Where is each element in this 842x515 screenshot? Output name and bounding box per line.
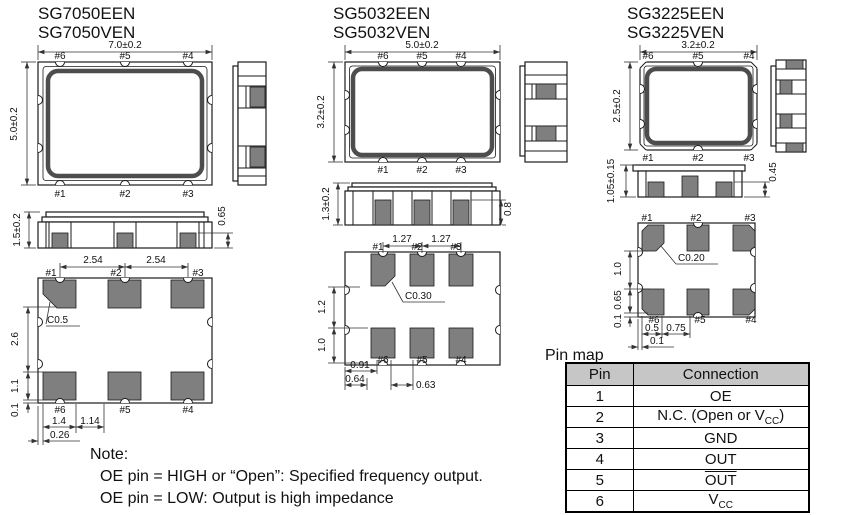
pin-label: #4 bbox=[455, 51, 467, 62]
terminal-pad bbox=[250, 87, 265, 107]
pin-label: #5 bbox=[694, 315, 706, 326]
pin-label: #1 bbox=[377, 165, 389, 176]
pin-label: #6 bbox=[54, 405, 66, 416]
pin-map-header-row: Pin Connection bbox=[566, 363, 809, 386]
terminal-pad bbox=[52, 233, 68, 248]
terminal-pad bbox=[536, 84, 556, 99]
pin-map-row: 1 OE bbox=[566, 386, 809, 407]
connection-text: N.C. (Open or V bbox=[657, 407, 765, 424]
sg7050-bottom-dims: 1.4 1.14 0.26 bbox=[28, 404, 104, 445]
pin-number-cell: 1 bbox=[566, 386, 633, 407]
pin-label: #2 bbox=[416, 165, 428, 176]
dim-label: 1.4 bbox=[52, 416, 66, 427]
pin-label: #4 bbox=[455, 355, 467, 366]
terminal-pad bbox=[716, 182, 732, 197]
pad-6 bbox=[642, 289, 664, 315]
connection-cell: N.C. (Open or VCC) bbox=[633, 407, 809, 428]
chamfer-label: C0.20 bbox=[678, 253, 705, 264]
note-label: Note: bbox=[90, 444, 483, 466]
sg7050-pitch-dims: 2.54 2.54 bbox=[60, 255, 188, 277]
connection-column-header: Connection bbox=[633, 363, 809, 386]
dim-label: 1.2 bbox=[317, 300, 328, 314]
pin-label: #1 bbox=[641, 213, 653, 224]
terminal-pad bbox=[250, 147, 265, 167]
terminal-pad bbox=[780, 114, 792, 128]
terminal-pad bbox=[648, 182, 664, 197]
dim-label: 0.1 bbox=[613, 314, 624, 328]
pad-3 bbox=[449, 254, 473, 286]
sg5032-side-view bbox=[520, 62, 567, 162]
datasheet-page: 7.0±0.2 5.0±0.2 #6 #5 #4 #1 #2 #3 bbox=[0, 0, 842, 515]
dim-label: 1.0 bbox=[317, 338, 328, 352]
terminal-pad bbox=[786, 60, 803, 69]
pin-number-cell: 3 bbox=[566, 428, 633, 449]
dim-label: 3.2±0.2 bbox=[316, 95, 327, 129]
connection-text: V bbox=[709, 491, 719, 508]
sg5032-top-height-dim: 3.2±0.2 bbox=[316, 62, 343, 162]
pin-label: #2 bbox=[692, 153, 704, 164]
dim-label: 0.26 bbox=[50, 430, 70, 441]
pin-number-cell: 2 bbox=[566, 407, 633, 428]
pad-3 bbox=[171, 280, 204, 308]
sg7050-front-height-dim: 1.5±0.2 bbox=[12, 212, 40, 248]
sg7050-top-height-dim: 5.0±0.2 bbox=[9, 62, 36, 185]
pin-label: #4 bbox=[182, 405, 194, 416]
sg7050-side-view bbox=[233, 62, 266, 185]
pin-label: #2 bbox=[690, 213, 702, 224]
pad-4 bbox=[733, 289, 755, 315]
chamfer-label: C0.30 bbox=[405, 291, 432, 302]
terminal-pad bbox=[682, 176, 698, 197]
connection-cell: GND bbox=[633, 428, 809, 449]
pin-map-row: 6 VCC bbox=[566, 491, 809, 513]
pin-map-table: Pin Connection 1 OE 2 N.C. (Open or VCC)… bbox=[565, 362, 810, 513]
pad-5 bbox=[108, 372, 141, 400]
sg3225-bottom-view: #1 #2 #3 #6 #5 #4 C0.20 1.0 0.65 0.1 bbox=[613, 213, 757, 350]
pin-label: #4 bbox=[182, 51, 194, 62]
title-line: SG3225VEN bbox=[627, 23, 724, 42]
title-line: SG5032EEN bbox=[333, 4, 430, 23]
pin-label: #3 bbox=[743, 153, 755, 164]
pad-6 bbox=[371, 328, 395, 358]
dim-label: 2.54 bbox=[146, 255, 166, 266]
dim-label: 2.5±0.2 bbox=[612, 89, 623, 123]
pin-label: #3 bbox=[744, 213, 756, 224]
pin-map-row: 5 OUT bbox=[566, 470, 809, 491]
connection-cell: OUT bbox=[633, 470, 809, 491]
sg5032-bottom-view: #1 #2 #3 #6 #5 #4 1.27 1.27 C0.30 1.2 1.… bbox=[317, 234, 500, 391]
sg5032-pitch-dims: 1.27 1.27 bbox=[383, 234, 461, 253]
connection-cell: OUT bbox=[633, 449, 809, 470]
pin-number-cell: 6 bbox=[566, 491, 633, 513]
pin-label: #2 bbox=[110, 268, 122, 279]
sg5032-top-view: 5.0±0.2 3.2±0.2 #6 #5 #4 #1 #2 #3 bbox=[316, 40, 500, 176]
dim-label: 0.1 bbox=[650, 336, 664, 347]
sg3225-front-height-dim: 1.05±0.15 bbox=[606, 158, 636, 203]
sg7050-top-view: 7.0±0.2 5.0±0.2 #6 #5 #4 #1 #2 #3 bbox=[9, 40, 212, 200]
pad-3 bbox=[733, 225, 755, 251]
title-line: SG3225EEN bbox=[627, 4, 724, 23]
pin-label: #2 bbox=[119, 189, 131, 200]
pin-label: #1 bbox=[54, 189, 66, 200]
pin-label: #6 bbox=[377, 355, 389, 366]
pin-label: #6 bbox=[377, 51, 389, 62]
pin-label: #3 bbox=[192, 268, 204, 279]
pad-4 bbox=[449, 328, 473, 358]
connection-text: ) bbox=[779, 407, 784, 424]
pin-label: #1 bbox=[642, 153, 654, 164]
terminal-pad bbox=[180, 233, 196, 248]
sg3225-top-height-dim: 2.5±0.2 bbox=[612, 62, 638, 150]
dim-label: 0.1 bbox=[10, 403, 21, 417]
pin-label: #2 bbox=[411, 242, 423, 253]
dim-label: 1.3±0.2 bbox=[321, 187, 332, 221]
connection-cell: OE bbox=[633, 386, 809, 407]
pin-label: #4 bbox=[743, 51, 755, 62]
sg7050-bottom-view: #1 #2 #3 #6 #5 #4 2.54 2.54 C0.5 2.6 1.1 bbox=[10, 255, 212, 445]
pin-label: #1 bbox=[45, 268, 57, 279]
pin-map-row: 3 GND bbox=[566, 428, 809, 449]
terminal-pad bbox=[536, 126, 556, 141]
dim-label: 1.14 bbox=[80, 416, 100, 427]
terminal-pad bbox=[453, 200, 469, 225]
pad-2 bbox=[687, 225, 709, 251]
connection-cell: VCC bbox=[633, 491, 809, 513]
pin-label: #5 bbox=[416, 355, 428, 366]
sg3225-top-view: 3.2±0.2 2.5±0.2 #6 #5 #4 #1 #2 #3 bbox=[612, 40, 758, 164]
title-line: SG7050VEN bbox=[38, 23, 135, 42]
sg5032-title: SG5032EEN SG5032VEN bbox=[333, 4, 430, 42]
dim-label: 2.54 bbox=[83, 255, 103, 266]
dim-label: 0.8 bbox=[503, 202, 514, 216]
pad-4 bbox=[171, 372, 204, 400]
dim-label: 1.0 bbox=[613, 262, 624, 276]
note-line-2: OE pin = LOW: Output is high impedance bbox=[100, 488, 483, 510]
pin-label: #4 bbox=[745, 315, 757, 326]
pin-number-cell: 4 bbox=[566, 449, 633, 470]
dim-label: 0.63 bbox=[416, 380, 436, 391]
dim-label: 0.65 bbox=[217, 206, 228, 226]
terminal-pad bbox=[117, 233, 133, 248]
sg7050-title: SG7050EEN SG7050VEN bbox=[38, 4, 135, 42]
pin-label: #6 bbox=[54, 51, 66, 62]
pad-2 bbox=[108, 280, 141, 308]
pad-2 bbox=[410, 254, 434, 286]
subscript: CC bbox=[765, 416, 779, 427]
terminal-pad bbox=[375, 200, 391, 225]
sg5032-front-view: 1.3±0.2 0.8 bbox=[321, 183, 514, 225]
dim-label: 0.5 bbox=[645, 323, 659, 334]
dim-label: 0.45 bbox=[768, 162, 779, 182]
title-line: SG7050EEN bbox=[38, 4, 135, 23]
pin-label: #5 bbox=[119, 51, 131, 62]
dim-label: 0.65 bbox=[613, 290, 624, 310]
pin-label: #5 bbox=[416, 51, 428, 62]
dim-label: 1.5±0.2 bbox=[12, 213, 23, 247]
sg3225-front-view: 1.05±0.15 0.45 bbox=[606, 158, 779, 203]
dim-label: 1.1 bbox=[10, 379, 21, 393]
overlined-signal: OUT bbox=[705, 472, 737, 489]
dim-label: 5.0±0.2 bbox=[9, 107, 20, 141]
pin-label: #3 bbox=[450, 242, 462, 253]
dim-label: 1.27 bbox=[431, 234, 451, 245]
dim-label: 0.75 bbox=[666, 323, 686, 334]
title-line: SG5032VEN bbox=[333, 23, 430, 42]
pin-label: #3 bbox=[182, 189, 194, 200]
chamfer-label: C0.5 bbox=[47, 315, 69, 326]
pad-6 bbox=[43, 372, 76, 400]
pin-number-cell: 5 bbox=[566, 470, 633, 491]
dim-label: 0.91 bbox=[350, 360, 370, 371]
sg3225-title: SG3225EEN SG3225VEN bbox=[627, 4, 724, 42]
dim-label: 1.27 bbox=[392, 234, 412, 245]
note-line-1: OE pin = HIGH or “Open”: Specified frequ… bbox=[100, 466, 483, 488]
sg3225-side-view bbox=[771, 60, 806, 152]
dim-label: 0.64 bbox=[345, 374, 365, 385]
pin-map-row: 2 N.C. (Open or VCC) bbox=[566, 407, 809, 428]
note-block: Note: OE pin = HIGH or “Open”: Specified… bbox=[90, 444, 483, 510]
terminal-pad bbox=[786, 143, 803, 152]
pin-label: #6 bbox=[642, 51, 654, 62]
pin-label: #5 bbox=[119, 405, 131, 416]
pin-map-row: 4 OUT bbox=[566, 449, 809, 470]
terminal-pad bbox=[414, 200, 430, 225]
dim-label: 1.05±0.15 bbox=[606, 158, 617, 203]
pad-5 bbox=[410, 328, 434, 358]
terminal-pad bbox=[780, 80, 792, 94]
pad-5 bbox=[687, 289, 709, 315]
pin-column-header: Pin bbox=[566, 363, 633, 386]
dim-label: 2.6 bbox=[10, 332, 21, 346]
pin-label: #3 bbox=[455, 165, 467, 176]
pin-label: #5 bbox=[692, 51, 704, 62]
subscript: CC bbox=[719, 500, 733, 511]
pin-label: #1 bbox=[372, 242, 384, 253]
sg7050-front-view: 1.5±0.2 0.65 bbox=[12, 206, 233, 248]
